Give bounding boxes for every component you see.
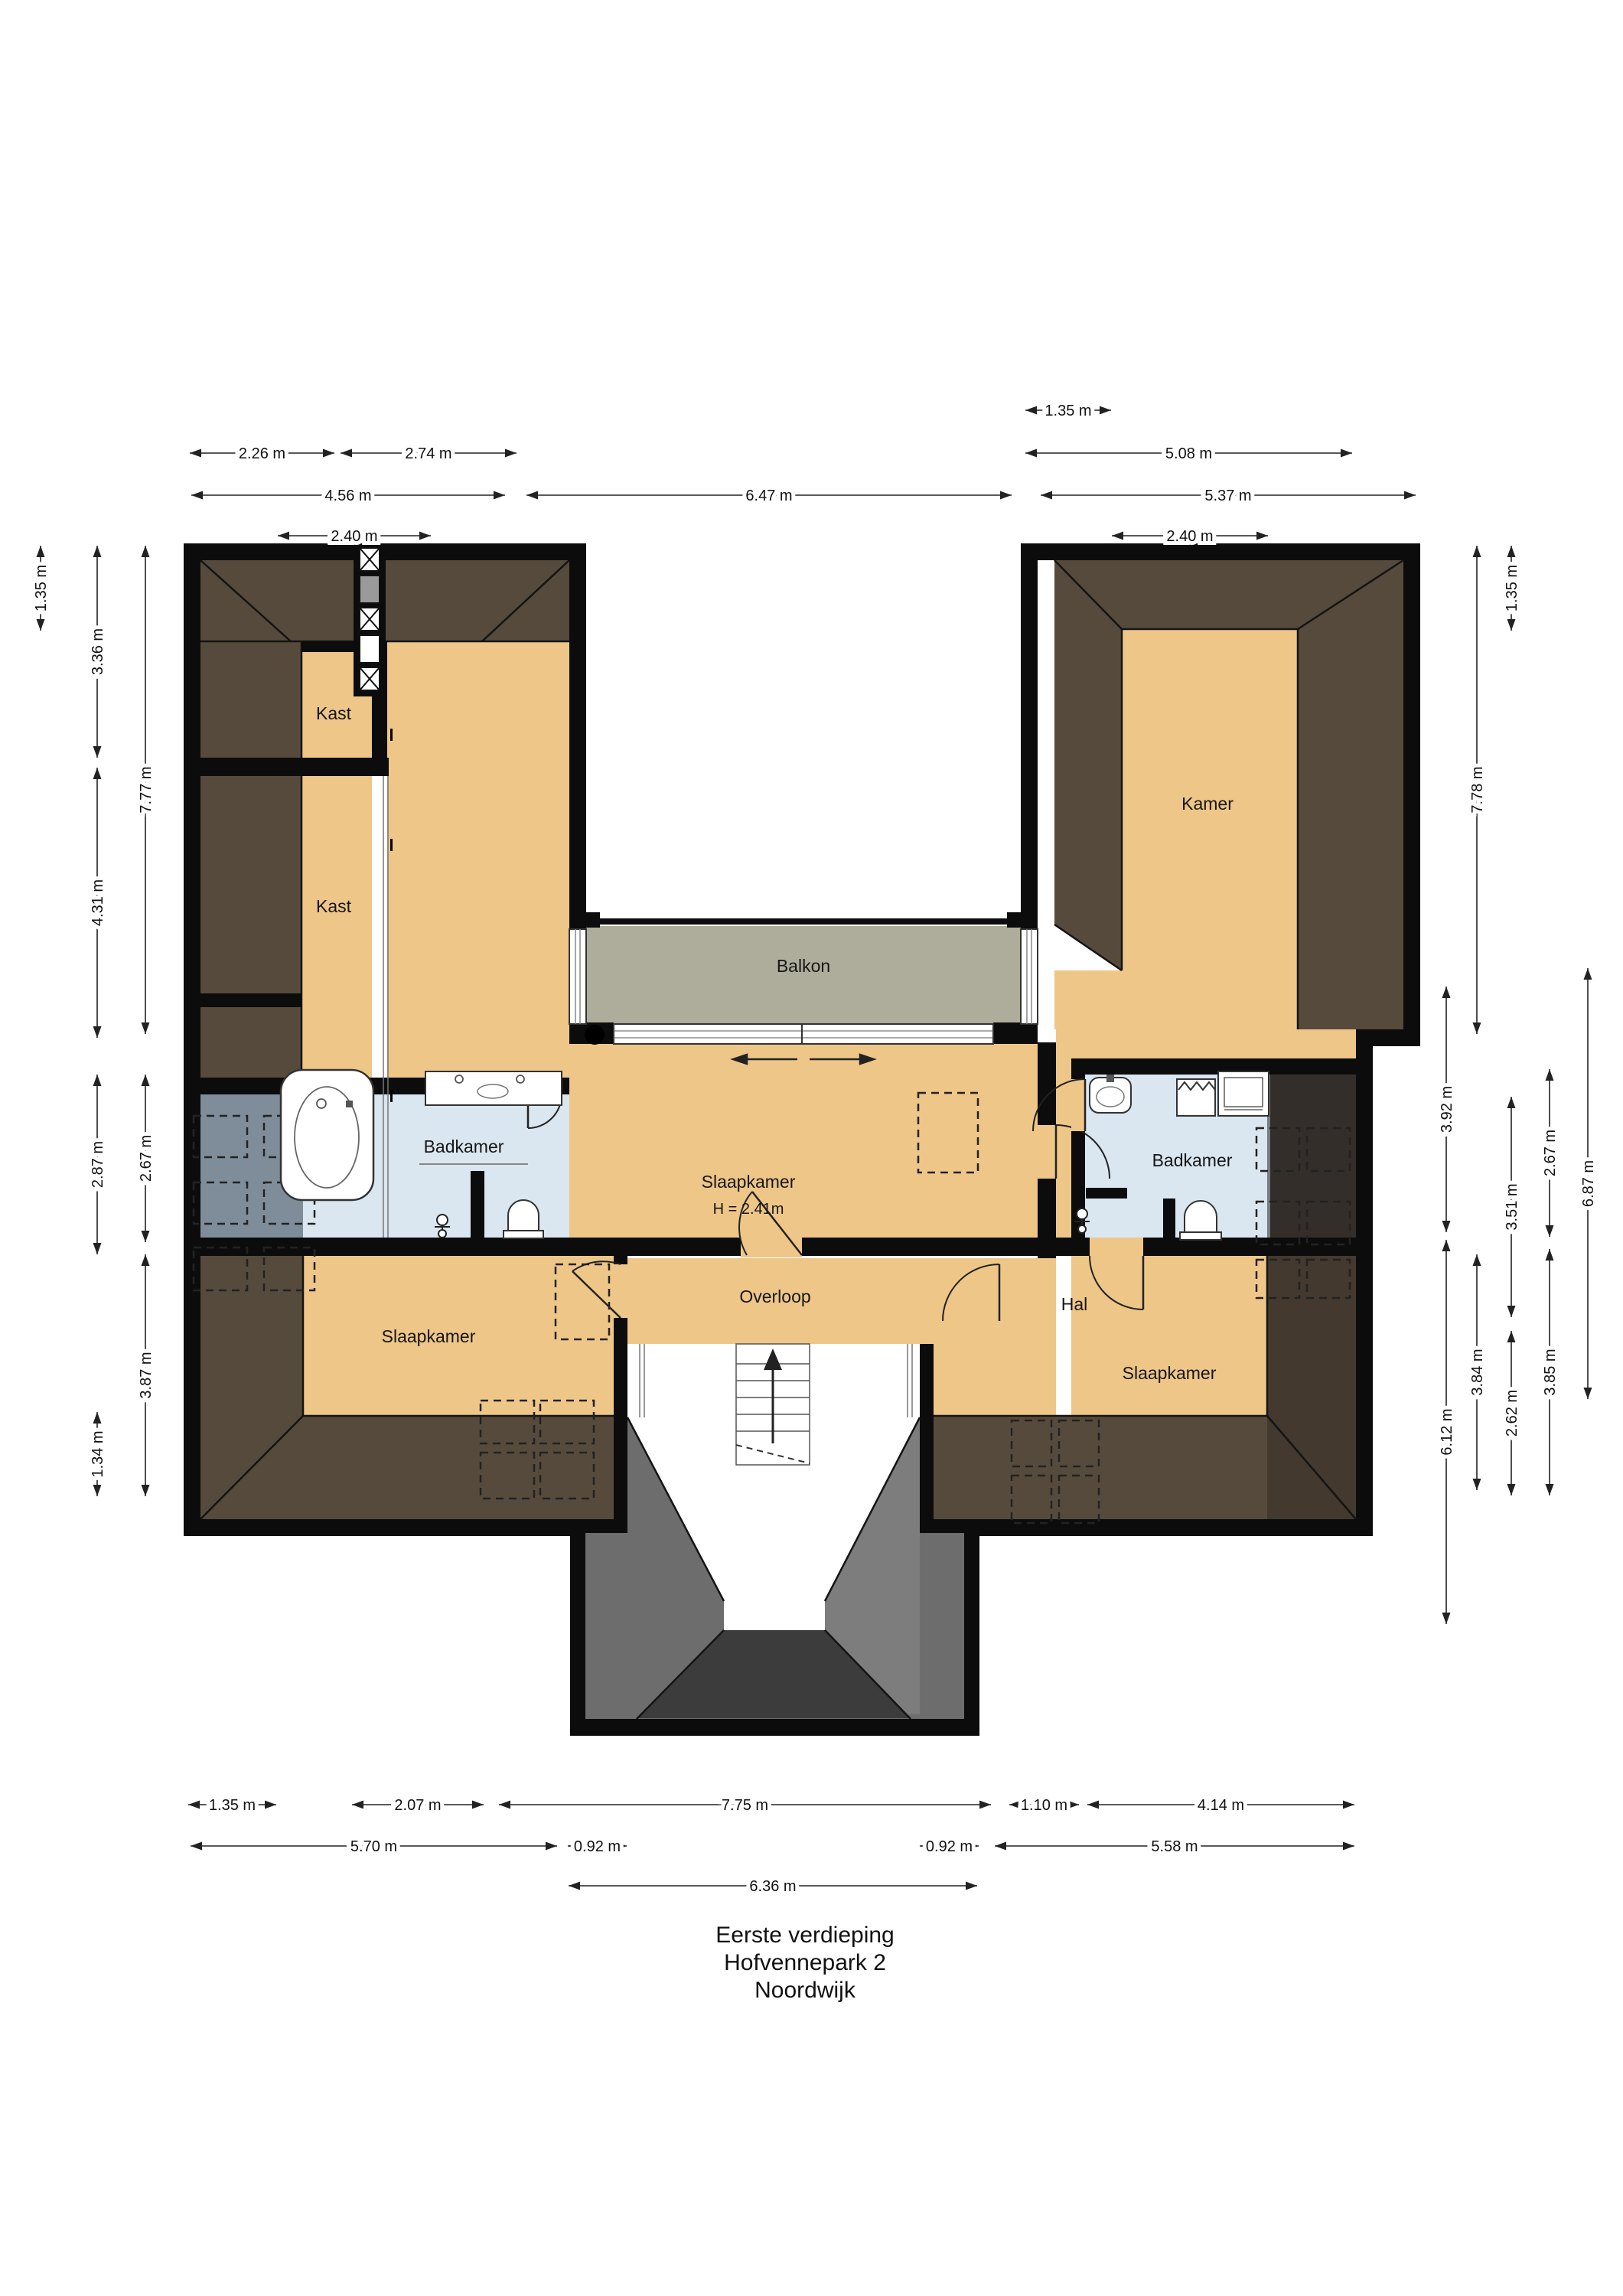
dim-label: 1.35 m (209, 1797, 256, 1814)
dim-h-0.92m: 0.92 m (568, 1838, 627, 1855)
wall-right-upper (1403, 543, 1420, 1046)
room-label-hal: Hal (1061, 1294, 1088, 1314)
dim-label: 5.58 m (1151, 1838, 1198, 1855)
room-name: Badkamer (1152, 1150, 1233, 1170)
vent-shaft-boxes (360, 548, 380, 690)
wall-protrusion-bottom (570, 1719, 979, 1736)
wall-wing-inner-right (1021, 543, 1038, 929)
track-mark (390, 839, 393, 851)
dim-h-5.37m: 5.37 m (1041, 488, 1416, 504)
plan-title-address: Hofvennepark 2 (724, 1950, 886, 1975)
room-label-badkamer-links: Badkamer (424, 1137, 504, 1156)
dim-label: 1.35 m (33, 565, 50, 612)
track-mark (390, 729, 393, 741)
sink-counter-left-icon (425, 1071, 562, 1105)
dim-label: 2.87 m (90, 1141, 106, 1188)
plan-title-floor: Eerste verdieping (715, 1923, 894, 1948)
dim-label: 5.70 m (350, 1838, 397, 1855)
wall-left (184, 543, 200, 1536)
room-name: Slaapkamer (1123, 1363, 1217, 1383)
dim-v-3.85m: 3.85 m (1542, 1249, 1559, 1495)
dim-h-5.70m: 5.70 m (191, 1838, 557, 1855)
dim-label: 6.36 m (749, 1878, 796, 1895)
dim-v-3.87m: 3.87 m (138, 1254, 155, 1496)
room-label-slaapkamer-linksonder: Slaapkamer (382, 1326, 476, 1346)
room-name: Slaapkamer (702, 1172, 796, 1192)
dim-label: 2.67 m (1542, 1130, 1559, 1176)
room-name: Kast (316, 703, 352, 723)
wall-protrusion-right (964, 1519, 979, 1736)
room-name: Overloop (739, 1287, 810, 1306)
dim-label: 3.84 m (1469, 1349, 1486, 1395)
wall-kast-divider (184, 758, 389, 776)
room-label-overloop: Overloop (739, 1287, 810, 1306)
wall-bathR-stub-h (1086, 1188, 1127, 1199)
wall-bathL-top-b (562, 1078, 569, 1094)
room-height-note: H = 2.41m (713, 1201, 784, 1218)
overlay-closet-right-bottom (1267, 1240, 1356, 1519)
dim-h-2.74m: 2.74 m (341, 445, 517, 462)
wall-bathR-top (1071, 1058, 1356, 1075)
room-name: Slaapkamer (382, 1326, 476, 1346)
dim-h-2.40m: 2.40 m (278, 528, 431, 545)
room-label-kast-1: Kast (316, 703, 352, 723)
floorplan-page: 1.35 m2.26 m2.74 m5.08 m4.56 m6.47 m5.37… (0, 0, 1623, 2296)
roof-right-wing-left (1054, 629, 1122, 970)
dim-label: 3.92 m (1439, 1086, 1455, 1133)
dim-h-2.26m: 2.26 m (190, 445, 334, 462)
dim-label: 5.37 m (1204, 488, 1251, 504)
room-label-badkamer-rechts: Badkamer (1152, 1150, 1233, 1170)
dim-v-3.84m: 3.84 m (1469, 1254, 1486, 1490)
dim-v-1.34m: 1.34 m (90, 1412, 106, 1496)
room-label-kast-2: Kast (316, 896, 352, 916)
dim-v-2.67m: 2.67 m (138, 1075, 155, 1242)
wall-bedL-right-b (614, 1318, 627, 1519)
dim-label: 0.92 m (926, 1838, 973, 1855)
dim-label: 2.40 m (1166, 528, 1213, 545)
dim-v-3.51m: 3.51 m (1504, 1097, 1520, 1317)
dim-label: 7.77 m (138, 766, 155, 813)
dim-h-0.92m: 0.92 m (920, 1838, 979, 1855)
shaft-gray-box (360, 576, 380, 603)
roof-bottom-left-band (303, 1416, 614, 1519)
dim-label: 4.31 m (90, 879, 106, 926)
dim-label: 2.07 m (394, 1797, 441, 1814)
floor-overloop-right (934, 1344, 1056, 1416)
slider-stub-right (993, 1022, 1038, 1044)
floor-kast-2 (301, 776, 372, 1078)
roof-left-strip (200, 641, 301, 1078)
dim-v-2.67m: 2.67 m (1542, 1069, 1559, 1237)
dim-label: 0.92 m (574, 1838, 621, 1855)
wall-hal-left-a (1038, 1042, 1056, 1125)
plan-title-city: Noordwijk (754, 1978, 856, 2003)
wall-mid-d (1143, 1238, 1356, 1256)
dim-h-1.35m: 1.35 m (1025, 403, 1111, 419)
dim-v-3.36m: 3.36 m (90, 546, 106, 758)
dim-label: 2.67 m (138, 1135, 155, 1182)
dim-label: 1.35 m (1045, 403, 1091, 419)
room-name: Kamer (1181, 794, 1234, 814)
dim-label: 1.10 m (1021, 1797, 1067, 1814)
dim-h-6.36m: 6.36 m (569, 1878, 977, 1895)
floor-kamer-west (1054, 970, 1122, 1029)
room-label-balkon: Balkon (777, 956, 830, 976)
wall-top-right (1038, 543, 1420, 560)
wall-bottom-left (184, 1519, 570, 1536)
wall-mid-c (1056, 1238, 1090, 1256)
dim-v-7.77m: 7.77 m (138, 546, 155, 1034)
room-name: Balkon (777, 956, 830, 976)
roof-right-wing-right (1298, 629, 1403, 1029)
balcony-railing (586, 918, 1021, 925)
room-name: Kast (316, 896, 352, 916)
dim-h-5.08m: 5.08 m (1025, 445, 1352, 462)
door-gap-slaapkamer-links (614, 1264, 627, 1318)
floorplan-svg: 1.35 m2.26 m2.74 m5.08 m4.56 m6.47 m5.37… (0, 0, 1623, 2296)
wall-left-strip (184, 993, 301, 1007)
dim-h-4.14m: 4.14 m (1087, 1797, 1354, 1814)
door-gap-hal (1038, 1125, 1056, 1179)
title-block: Eerste verdieping Hofvennepark 2 Noordwi… (715, 1923, 894, 2003)
floor-overloop (627, 1258, 1056, 1344)
dim-v-4.31m: 4.31 m (90, 768, 106, 1038)
dim-h-7.75m: 7.75 m (499, 1797, 991, 1814)
track-mark (390, 1090, 393, 1102)
dim-h-2.40m: 2.40 m (1112, 528, 1268, 545)
overlay-closet-right-top (1267, 1075, 1356, 1240)
dim-label: 3.51 m (1504, 1183, 1520, 1230)
washing-machine-icon (1218, 1071, 1269, 1116)
dim-h-6.47m: 6.47 m (526, 488, 1012, 504)
dim-label: 1.35 m (1504, 565, 1520, 612)
floor-slaapkamer-rechts (1071, 1256, 1267, 1416)
wall-mid-b (802, 1238, 1056, 1256)
room-name: Badkamer (424, 1137, 504, 1156)
dim-label: 7.75 m (722, 1797, 768, 1814)
dim-v-6.87m: 6.87 m (1580, 968, 1597, 1399)
room-name: Hal (1061, 1294, 1088, 1314)
wall-right-lower (1356, 1029, 1373, 1536)
dim-label: 4.56 m (324, 488, 371, 504)
dim-label: 6.12 m (1439, 1408, 1455, 1455)
dim-label: 3.87 m (138, 1352, 155, 1398)
dim-h-5.58m: 5.58 m (995, 1838, 1354, 1855)
wall-hal-left-b (1038, 1179, 1056, 1258)
dim-v-2.87m: 2.87 m (90, 1075, 106, 1254)
door-gap-slaapkamer-rechts (1090, 1238, 1143, 1256)
dim-label: 7.78 m (1469, 766, 1486, 813)
window-right (1021, 929, 1038, 1024)
wall-wing-inner-left (569, 543, 586, 929)
dim-label: 2.26 m (239, 445, 285, 462)
dim-h-1.10m: 1.10 m (1009, 1797, 1079, 1814)
dim-v-7.78m: 7.78 m (1469, 546, 1486, 1034)
bathtub-icon (281, 1070, 373, 1200)
wall-bottom-right (979, 1519, 1373, 1536)
dim-v-2.62m: 2.62 m (1504, 1331, 1520, 1495)
dim-label: 2.62 m (1504, 1390, 1520, 1437)
dim-h-4.56m: 4.56 m (191, 488, 505, 504)
dim-label: 6.47 m (745, 488, 792, 504)
wall-step (1373, 1029, 1420, 1046)
floor-hal-top (1087, 1029, 1122, 1058)
dim-v-3.92m: 3.92 m (1439, 987, 1455, 1232)
wall-stairwell-right (920, 1344, 934, 1519)
shaft-white-box (360, 635, 380, 663)
dim-label: 1.34 m (90, 1430, 106, 1477)
door-gap-badkamer-rechts (1071, 1079, 1085, 1131)
dim-label: 6.87 m (1580, 1160, 1597, 1207)
dim-v-6.12m: 6.12 m (1439, 1240, 1455, 1624)
dim-h-1.35m: 1.35 m (188, 1797, 276, 1814)
sink-right-icon (1090, 1075, 1131, 1113)
wall-toilet-stub-left (471, 1171, 484, 1240)
floor-slaapkamer-midden (569, 1042, 1038, 1240)
floor-kamer (1122, 629, 1298, 1058)
dim-label: 5.08 m (1165, 445, 1212, 462)
dim-label: 3.85 m (1542, 1349, 1559, 1395)
dim-label: 2.40 m (331, 528, 377, 545)
dim-v-1.35m: 1.35 m (33, 546, 50, 631)
dim-label: 4.14 m (1198, 1797, 1244, 1814)
dim-h-2.07m: 2.07 m (352, 1797, 484, 1814)
dim-v-1.35m: 1.35 m (1504, 546, 1520, 631)
window-left (569, 929, 586, 1024)
roof-left-bottom (200, 1256, 303, 1519)
ceiling-light-dot (585, 1025, 605, 1045)
room-label-slaapkamer-rechtsonder: Slaapkamer (1123, 1363, 1217, 1383)
room-label-kamer: Kamer (1181, 794, 1234, 814)
dim-label: 3.36 m (90, 628, 106, 675)
dim-label: 2.74 m (405, 445, 451, 462)
laundry-basket-icon (1177, 1079, 1215, 1116)
door-gap-slaapkamer-midden (741, 1236, 802, 1257)
wall-bathR-stub-v (1163, 1199, 1175, 1238)
wall-protrusion-left (570, 1519, 585, 1736)
